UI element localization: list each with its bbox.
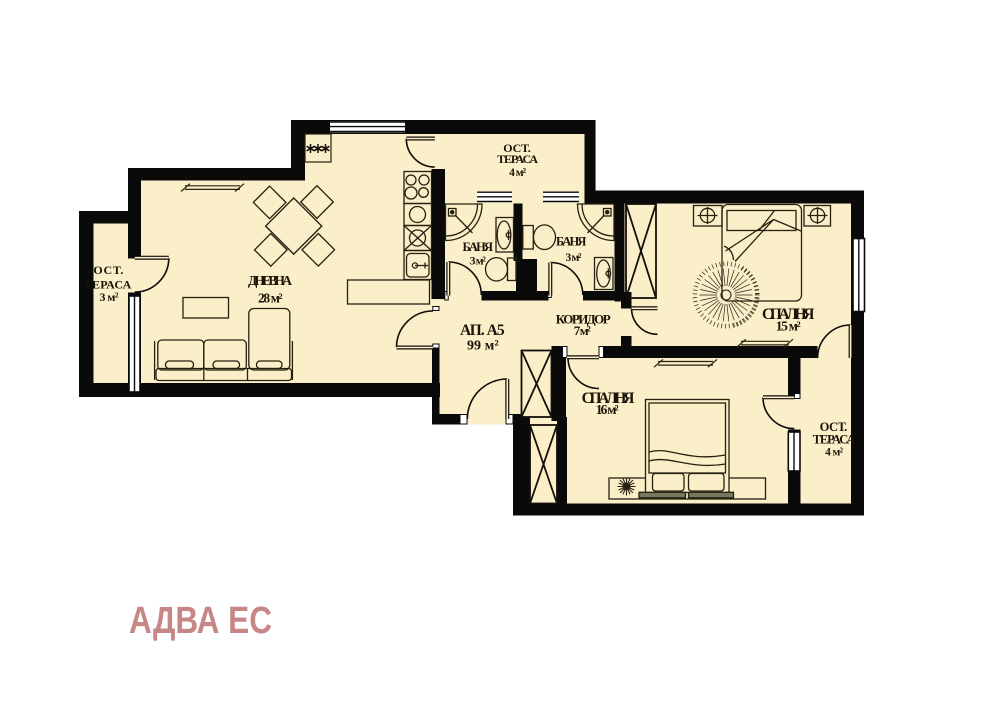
svg-text:3 м²: 3 м² [566, 252, 583, 264]
svg-text:4 м²: 4 м² [509, 167, 527, 179]
svg-text:16 м²: 16 м² [596, 402, 619, 417]
svg-text:ОСТ.: ОСТ. [93, 263, 123, 277]
svg-text:3 м²: 3 м² [470, 256, 487, 268]
svg-text:АП. А5: АП. А5 [460, 322, 505, 339]
svg-text:15 м²: 15 м² [776, 319, 801, 334]
svg-text:ТЕРАСА: ТЕРАСА [497, 152, 538, 166]
svg-text:99 м²: 99 м² [467, 338, 499, 353]
svg-text:28 м²: 28 м² [258, 291, 283, 306]
svg-text:ТЕРАСА: ТЕРАСА [813, 432, 856, 446]
svg-text:АДВА ЕС: АДВА ЕС [129, 600, 272, 642]
svg-text:4 м²: 4 м² [825, 447, 844, 459]
svg-text:БАНЯ: БАНЯ [556, 235, 587, 249]
svg-text:7 м²: 7 м² [574, 323, 591, 338]
svg-text:3 м²: 3 м² [100, 290, 119, 304]
svg-text:ДНЕВНА: ДНЕВНА [248, 273, 292, 288]
svg-text:БАНЯ: БАНЯ [463, 240, 494, 254]
